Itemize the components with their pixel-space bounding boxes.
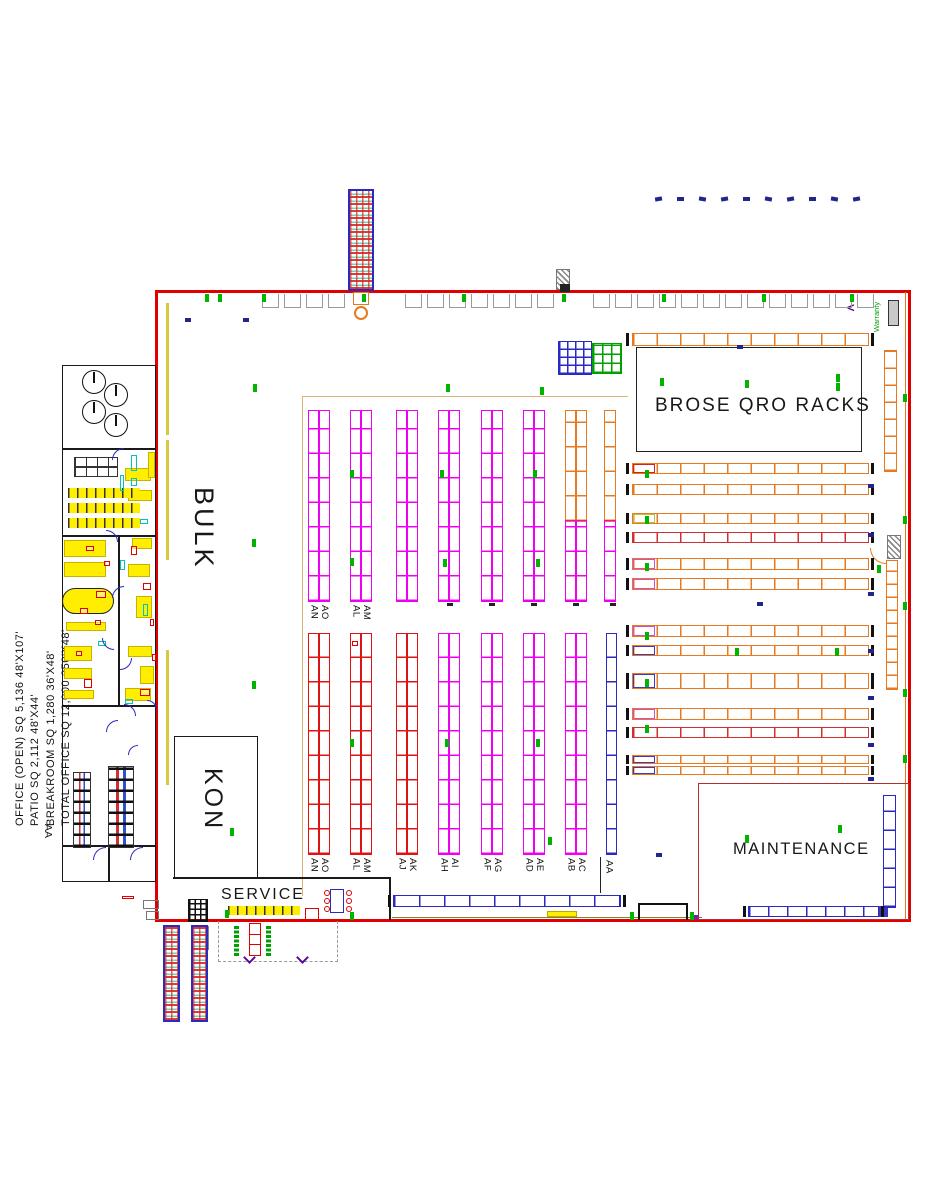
pallet-grid-blue	[558, 341, 592, 375]
rack-column	[565, 410, 587, 522]
survey-mark-green	[462, 294, 466, 302]
fixture-cyan	[131, 478, 137, 486]
survey-mark-green	[443, 559, 447, 567]
survey-mark-green	[645, 679, 649, 687]
mark-blue	[656, 853, 662, 857]
rack-aisle-letter: AK	[408, 858, 418, 872]
rack-end-marker	[871, 673, 874, 689]
rack-aisle-label: ANAO	[309, 605, 329, 620]
rack-column	[523, 633, 545, 855]
mark-blue	[185, 318, 191, 322]
zone-label-bulk: BULK	[188, 487, 219, 570]
rack-column	[606, 633, 617, 855]
mark-blue	[868, 484, 874, 488]
parking-dash	[809, 197, 816, 201]
parking-dash	[853, 196, 861, 201]
rack-end-marker	[626, 513, 629, 524]
office-chair-red	[84, 679, 92, 688]
rack-end-marker	[626, 558, 629, 570]
fixture-cyan	[120, 475, 124, 491]
patio-table-spoke	[93, 402, 95, 413]
rack-aisle-letter: AI	[450, 858, 460, 872]
fixture-cyan	[120, 560, 125, 570]
mark-blue	[868, 777, 874, 781]
survey-mark-green	[903, 755, 907, 763]
dock-door	[537, 294, 554, 308]
wall-black-fixture	[560, 284, 570, 292]
dock-door	[681, 294, 698, 308]
rack-aisle-label: AA	[604, 860, 614, 874]
office-desk-yellow	[64, 562, 106, 577]
rack-aisle-label: ALAM	[351, 858, 371, 873]
survey-mark-green	[838, 825, 842, 833]
survey-mark-green	[835, 648, 839, 656]
rack-end-marker	[871, 766, 874, 775]
office-wall-divider-3	[62, 705, 156, 707]
rack-column	[396, 410, 418, 602]
rack-aisle-letter: AH	[439, 858, 449, 872]
aa-dimension-line	[600, 857, 601, 893]
survey-mark-green	[205, 294, 209, 302]
rack-end-marker	[626, 463, 629, 474]
rack-column	[308, 410, 330, 602]
rack-bar-end-bay	[633, 756, 655, 763]
dock-door	[857, 294, 874, 308]
rack-column	[604, 520, 616, 602]
side-label-aa: AA	[42, 824, 54, 838]
rack-aisle-letter: AE	[535, 858, 545, 872]
office-desk-yellow	[64, 690, 94, 699]
office-chair-red	[86, 546, 94, 551]
survey-mark-green	[836, 374, 840, 382]
office-desk-yellow	[64, 668, 92, 679]
rack-end-marker	[871, 333, 874, 346]
rack-end-marker	[871, 727, 874, 738]
dock-door	[703, 294, 720, 308]
dimension-tick	[531, 603, 537, 606]
rack-aisle-label: ADAE	[524, 858, 544, 872]
wall-top	[155, 290, 911, 293]
office-desk-yellow	[128, 646, 152, 657]
office-chair-red	[122, 896, 134, 899]
dock-door	[637, 294, 654, 308]
rack-aisle-letter: AN	[309, 605, 319, 620]
office-chair-red	[150, 619, 154, 626]
rack-bar-end-bay	[633, 709, 655, 719]
dock-door	[725, 294, 742, 308]
rack-end-marker	[626, 727, 629, 738]
wall-rack-column	[886, 560, 898, 690]
rack-end-marker	[626, 708, 629, 720]
office-chair-red	[76, 651, 82, 656]
rack-column	[523, 410, 545, 602]
vestibule-green-sign	[266, 926, 271, 956]
wall-strip-yellow	[166, 650, 169, 785]
survey-mark-green	[218, 294, 222, 302]
survey-mark-green	[225, 910, 229, 918]
rack-bar-end-bay	[633, 767, 655, 774]
gray-dock-item	[143, 900, 159, 909]
office-wall-vert-2	[108, 845, 110, 882]
rack-zone-outline	[302, 396, 628, 397]
survey-mark-green	[350, 558, 354, 566]
wall-strip-yellow	[166, 303, 169, 435]
office-chair-red	[352, 641, 358, 646]
dimension-tick	[610, 603, 616, 606]
mark-blue	[868, 592, 874, 596]
breakroom-bench	[68, 488, 140, 498]
rack-column	[565, 520, 587, 602]
rack-column	[565, 633, 587, 855]
rack-end-marker	[623, 895, 626, 907]
office-chair-red	[95, 620, 101, 625]
zone-label-brose: BROSE QRO RACKS	[655, 395, 871, 417]
rack-end-marker	[626, 532, 629, 543]
survey-mark-green	[440, 470, 444, 478]
fixture-cyan	[143, 604, 148, 616]
office-chair-red	[131, 546, 137, 555]
rack-aisle-letter: AG	[493, 858, 503, 873]
rack-end-marker	[871, 578, 874, 590]
survey-mark-green	[562, 294, 566, 302]
rack-end-marker	[626, 625, 629, 637]
dock-conveyor-rack	[348, 189, 374, 291]
dock-door	[471, 294, 488, 308]
zone-label-service: SERVICE	[221, 886, 305, 904]
survey-mark-green	[903, 394, 907, 402]
survey-mark-green	[540, 387, 544, 395]
parking-dash	[765, 196, 773, 201]
service-table	[330, 889, 344, 913]
rack-aisle-letter: AD	[524, 858, 534, 872]
floor-rack-bar-blue	[748, 906, 879, 917]
survey-mark-green	[645, 470, 649, 478]
zone-label-maintenance: MAINTENANCE	[733, 840, 870, 859]
office-chair-red	[152, 654, 156, 661]
dock-door	[593, 294, 610, 308]
rack-end-marker	[626, 755, 629, 764]
rack-column	[481, 633, 503, 855]
pallet-rack-bar	[632, 727, 869, 738]
dock-door	[328, 294, 345, 308]
rack-aisle-letter: AO	[320, 858, 330, 873]
rack-aisle-letter: AL	[351, 858, 361, 873]
service-chair	[324, 890, 330, 896]
survey-mark-green	[836, 383, 840, 391]
mark-blue	[868, 696, 874, 700]
survey-mark-green	[252, 681, 256, 689]
survey-mark-green	[645, 516, 649, 524]
service-chair	[346, 898, 352, 904]
wall-rack-column	[883, 795, 896, 908]
service-room-top-wall	[173, 877, 390, 879]
rack-aisle-letter: AF	[482, 858, 492, 873]
dock-door	[515, 294, 532, 308]
rack-aisle-label: AJAK	[397, 858, 417, 872]
dock-door	[306, 294, 323, 308]
rack-end-marker	[871, 755, 874, 764]
rack-end-marker	[871, 558, 874, 570]
office-desk-yellow	[148, 452, 155, 478]
rack-bar-end-bay	[633, 559, 655, 569]
parking-dash	[655, 196, 663, 201]
parking-dash	[677, 197, 684, 201]
patio-table-spoke	[115, 415, 117, 426]
rack-aisle-letter: AN	[309, 858, 319, 873]
pallet-rack-bar	[632, 333, 869, 346]
dock-door	[427, 294, 444, 308]
service-chair	[324, 906, 330, 912]
survey-mark-green	[645, 725, 649, 733]
dimension-tick	[447, 603, 453, 606]
survey-mark-green	[350, 470, 354, 478]
rack-column	[481, 410, 503, 602]
gray-dock-item	[146, 911, 159, 920]
survey-mark-green	[533, 470, 537, 478]
wall-strip-yellow	[166, 440, 169, 560]
rack-end-marker	[871, 625, 874, 637]
pallet-rack-bar	[632, 513, 869, 524]
rack-aisle-label: ALAM	[351, 605, 371, 620]
survey-mark-green	[252, 539, 256, 547]
rack-aisle-letter: AJ	[397, 858, 407, 872]
survey-mark-green	[230, 828, 234, 836]
rack-end-marker	[626, 645, 629, 656]
breakroom-bench	[68, 518, 140, 528]
survey-mark-green	[536, 739, 540, 747]
open-office-desk-cluster	[108, 766, 134, 848]
dock-door	[769, 294, 786, 308]
rack-end-marker	[626, 578, 629, 590]
rack-end-marker	[871, 708, 874, 720]
pallet-rack-bar	[632, 766, 869, 775]
warehouse-floor-plan: BULK KON SERVICE BROSE QRO RACKS MAINTEN…	[0, 0, 927, 1200]
rack-aisle-label: ANAO	[309, 858, 329, 873]
area-line-breakroom: BREAKROOM SQ 1,280 36'X48'	[45, 496, 57, 826]
parking-dash	[831, 196, 839, 201]
office-desk-yellow	[140, 666, 154, 684]
rack-bar-end-bay	[633, 464, 655, 473]
mark-blue	[868, 533, 874, 537]
floor-rack-bar-blue	[393, 895, 621, 907]
mark-blue	[243, 318, 249, 322]
parking-dash	[721, 196, 729, 201]
rack-end-marker	[388, 895, 391, 907]
vestibule-green-sign	[234, 926, 239, 956]
parking-dash	[743, 197, 750, 201]
patio-table-spoke	[93, 372, 95, 383]
office-chair-red	[143, 583, 151, 590]
pallet-rack-bar	[632, 673, 869, 689]
rack-column	[308, 633, 330, 855]
survey-mark-green	[690, 912, 694, 920]
rack-column	[350, 410, 372, 602]
office-desk-yellow	[64, 540, 106, 557]
rack-aisle-letter: AO	[320, 605, 330, 620]
survey-mark-green	[745, 835, 749, 843]
rack-aisle-label: AFAG	[482, 858, 502, 873]
survey-mark-green	[350, 912, 354, 920]
service-chair	[324, 898, 330, 904]
pallet-rack-bar	[632, 645, 869, 656]
survey-mark-green	[446, 384, 450, 392]
rack-bar-end-bay	[633, 646, 655, 655]
office-chair-red	[96, 591, 106, 598]
survey-mark-green	[877, 565, 881, 573]
dock-door	[813, 294, 830, 308]
rack-end-marker	[626, 766, 629, 775]
breakroom-table-grid	[74, 457, 118, 477]
survey-mark-green	[762, 294, 766, 302]
survey-mark-green	[548, 837, 552, 845]
office-chair-red	[80, 608, 88, 614]
office-desk-yellow	[128, 564, 150, 577]
open-office-desk-cluster	[73, 772, 91, 848]
mark-blue	[868, 649, 874, 653]
dock-door	[284, 294, 301, 308]
pallet-rack-bar	[632, 484, 869, 495]
zone-label-kon: KON	[198, 768, 227, 831]
survey-mark-green	[362, 294, 366, 302]
vestibule-red-fixture	[249, 923, 261, 956]
rack-end-marker	[626, 673, 629, 689]
rack-bar-end-bay	[633, 626, 655, 636]
parking-dash	[699, 196, 707, 201]
pallet-rack-bar	[632, 532, 869, 543]
fixture-cyan	[140, 519, 148, 524]
rack-column	[604, 410, 616, 522]
yellow-floor-strip	[547, 911, 577, 917]
rack-column	[396, 633, 418, 855]
office-wall-divider-1	[62, 448, 156, 450]
external-rack-column	[163, 925, 180, 1022]
survey-mark-green	[445, 739, 449, 747]
stair-structure	[188, 899, 208, 922]
rack-aisle-label: AHAI	[439, 858, 459, 872]
area-line-patio: PATIO SQ 2,112 48'X44'	[29, 496, 41, 826]
dock-leveler-bracket	[638, 903, 688, 920]
survey-mark-green	[660, 378, 664, 386]
office-desk-oval	[62, 588, 114, 614]
dock-door	[493, 294, 510, 308]
rack-aisle-letter: AM	[362, 858, 372, 873]
dimension-tick	[573, 603, 579, 606]
pallet-rack-bar	[632, 755, 869, 764]
rack-end-marker	[871, 463, 874, 474]
dock-conveyor-head	[353, 292, 369, 305]
breakroom-bench	[68, 503, 140, 513]
rack-column	[438, 410, 460, 602]
office-chair-red	[140, 689, 150, 696]
survey-mark-green	[745, 380, 749, 388]
survey-mark-green	[253, 384, 257, 392]
service-chair	[346, 890, 352, 896]
wall-rack-column	[884, 350, 897, 472]
service-chair	[346, 906, 352, 912]
survey-mark-green	[645, 632, 649, 640]
parking-dash	[787, 196, 795, 201]
rack-column	[438, 633, 460, 855]
survey-mark-green	[735, 648, 739, 656]
rack-end-marker	[871, 513, 874, 524]
pallet-rack-bar	[632, 558, 869, 570]
dimension-tick	[489, 603, 495, 606]
rack-aisle-letter: AC	[577, 858, 587, 872]
office-chair-red	[104, 561, 110, 566]
pallet-rack-bar	[632, 578, 869, 590]
survey-mark-green	[262, 294, 266, 302]
external-rack-column	[191, 925, 208, 1022]
pallet-rack-bar	[632, 463, 869, 474]
dock-door	[405, 294, 422, 308]
survey-mark-green	[645, 563, 649, 571]
right-wall-stair-hatch	[887, 535, 901, 559]
rack-aisle-letter: AB	[566, 858, 576, 872]
rack-aisle-letter: AL	[351, 605, 361, 620]
rack-bar-end-bay	[633, 514, 655, 523]
rack-end-marker	[881, 906, 884, 917]
survey-mark-green	[903, 516, 907, 524]
pallet-grid-green	[592, 343, 622, 374]
right-wall-door	[888, 300, 899, 326]
dock-door	[615, 294, 632, 308]
area-line-office-open: OFFICE (OPEN) SQ 5,136 48'X107'	[14, 496, 26, 826]
dock-conveyor-hook	[354, 306, 368, 320]
rack-bar-end-bay	[633, 674, 655, 688]
mark-blue	[757, 602, 763, 606]
survey-mark-green	[350, 739, 354, 747]
rack-bar-end-bay	[633, 579, 655, 589]
survey-mark-green	[850, 294, 854, 302]
pallet-rack-bar	[632, 625, 869, 637]
mark-blue	[737, 345, 743, 349]
rack-end-marker	[626, 333, 629, 346]
service-red-square	[305, 908, 319, 920]
patio-table-spoke	[115, 385, 117, 396]
survey-mark-green	[903, 602, 907, 610]
rack-zone-outline-left	[302, 396, 303, 896]
rack-aisle-letter: AM	[362, 605, 372, 620]
dock-door	[791, 294, 808, 308]
rack-end-marker	[626, 484, 629, 495]
rack-aisle-letter: AA	[604, 860, 614, 874]
rack-aisle-label: ABAC	[566, 858, 586, 872]
mark-blue	[868, 743, 874, 747]
survey-mark-green	[662, 294, 666, 302]
survey-mark-green	[630, 912, 634, 920]
survey-mark-green	[903, 689, 907, 697]
fixture-cyan	[131, 455, 137, 471]
pallet-rack-bar	[632, 708, 869, 720]
survey-mark-green	[536, 559, 540, 567]
rack-end-marker	[743, 906, 746, 917]
service-counter-yellow	[228, 906, 300, 915]
